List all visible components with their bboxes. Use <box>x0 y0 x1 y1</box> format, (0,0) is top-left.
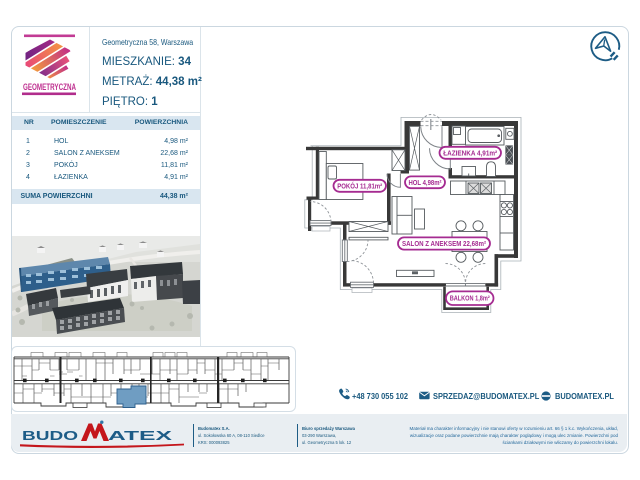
svg-text:HOL 4,98m²: HOL 4,98m² <box>409 180 443 187</box>
svg-text:ŁAZIENKA 4,91m²: ŁAZIENKA 4,91m² <box>443 150 498 157</box>
svg-text:ATEX: ATEX <box>108 428 173 443</box>
svg-text:SALON Z ANEKSEM 22,68m²: SALON Z ANEKSEM 22,68m² <box>402 241 487 248</box>
svg-text:BUDO: BUDO <box>22 428 78 443</box>
svg-text:POKÓJ 11,81m²: POKÓJ 11,81m² <box>337 181 383 190</box>
svg-text:BALKON 1,8m²: BALKON 1,8m² <box>450 296 491 303</box>
svg-text:GEOMETRYCZNA: GEOMETRYCZNA <box>23 82 76 92</box>
